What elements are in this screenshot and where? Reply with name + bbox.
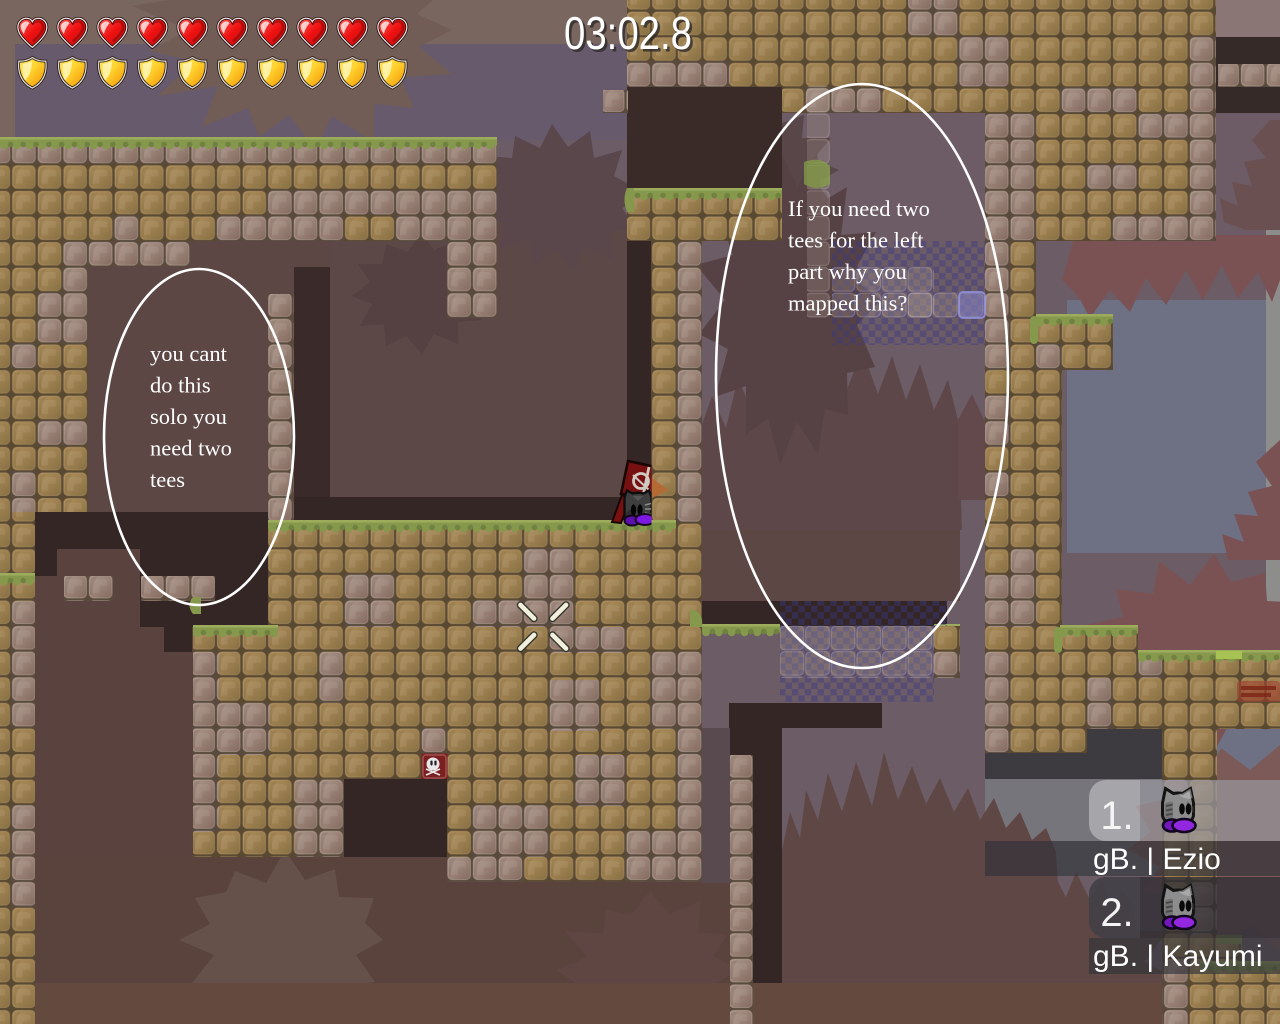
svg-text:do this: do this <box>150 373 211 398</box>
svg-text:part why you: part why you <box>788 259 907 284</box>
svg-text:1.: 1. <box>1100 794 1133 838</box>
svg-text:need two: need two <box>150 436 232 461</box>
svg-text:tees: tees <box>150 467 185 492</box>
svg-text:03:02.8: 03:02.8 <box>564 7 692 59</box>
svg-text:2.: 2. <box>1100 891 1133 935</box>
svg-text:mapped this?: mapped this? <box>788 291 907 316</box>
svg-text:If you need two: If you need two <box>788 196 930 221</box>
svg-text:gB. | Kayumi: gB. | Kayumi <box>1093 940 1263 973</box>
svg-text:tees for the left: tees for the left <box>788 228 924 253</box>
svg-text:gB. | Ezio: gB. | Ezio <box>1093 843 1221 876</box>
svg-text:solo you: solo you <box>150 404 227 429</box>
svg-text:you cant: you cant <box>150 341 228 366</box>
